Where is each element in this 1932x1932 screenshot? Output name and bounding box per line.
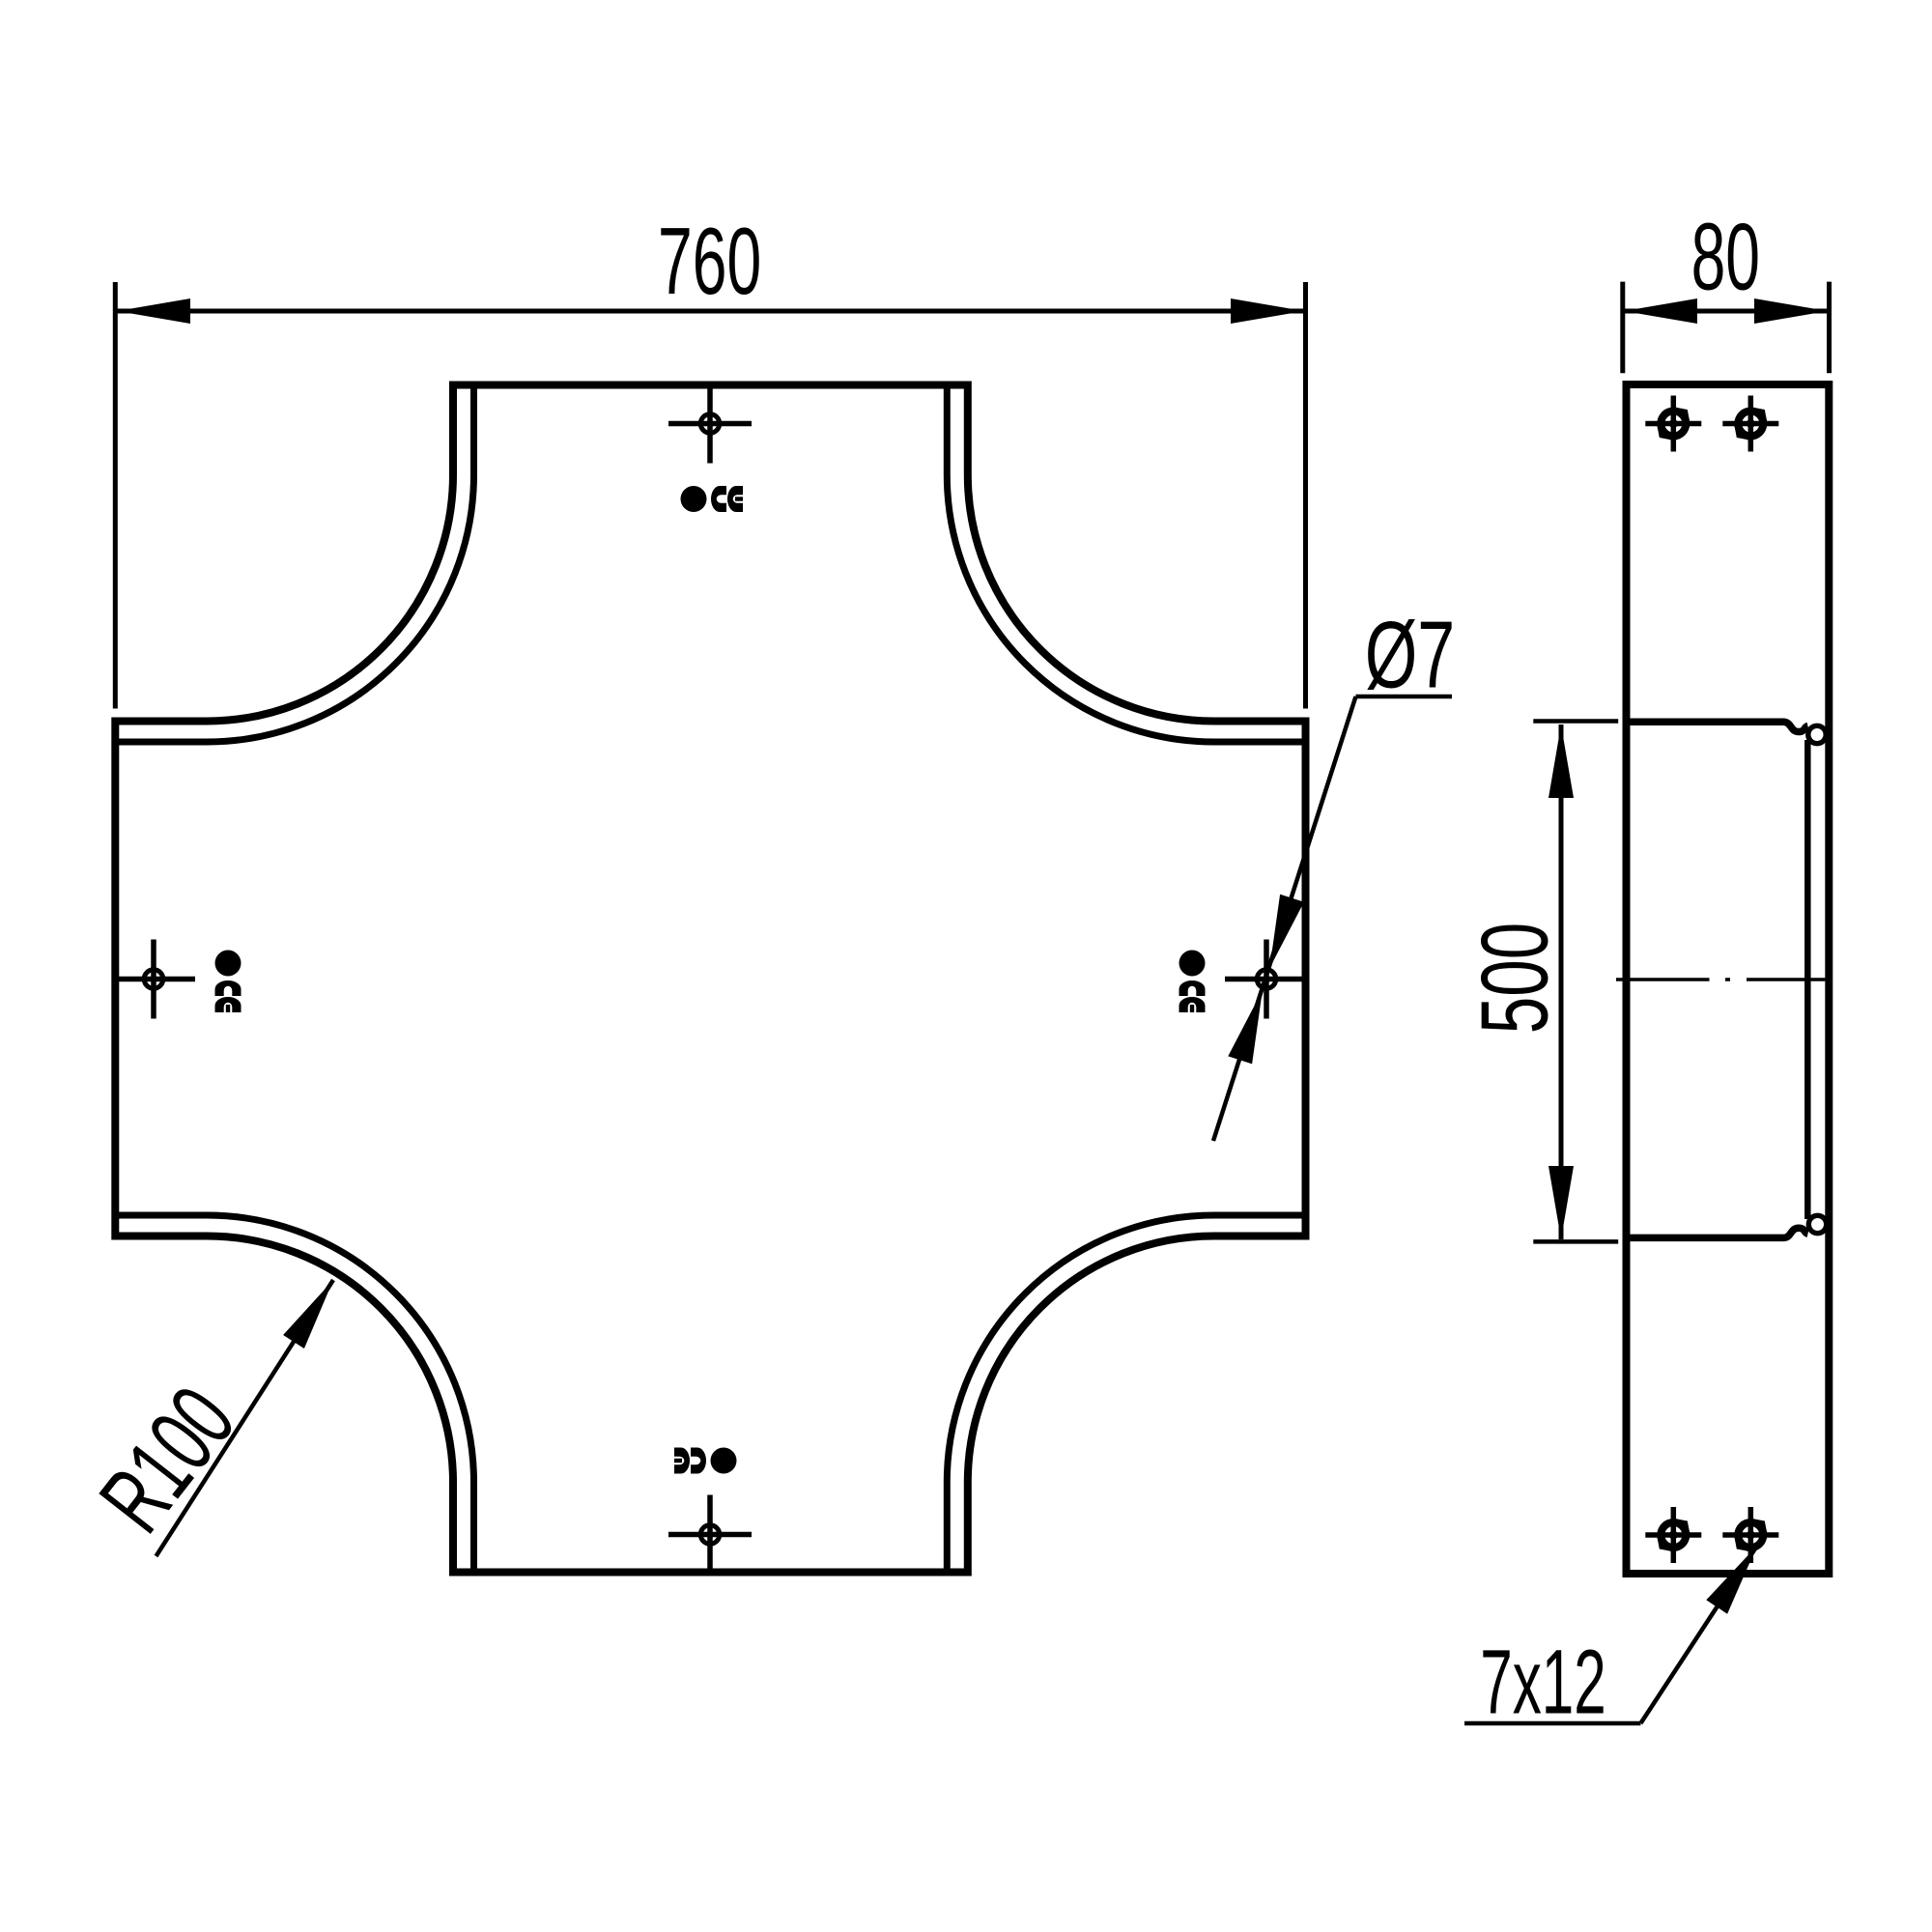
svg-text:760: 760 (658, 208, 761, 314)
svg-text:500: 500 (1462, 923, 1568, 1035)
svg-text:80: 80 (1691, 204, 1760, 310)
svg-text:Ø7: Ø7 (1365, 603, 1455, 709)
svg-text:7x12: 7x12 (1480, 1630, 1606, 1732)
